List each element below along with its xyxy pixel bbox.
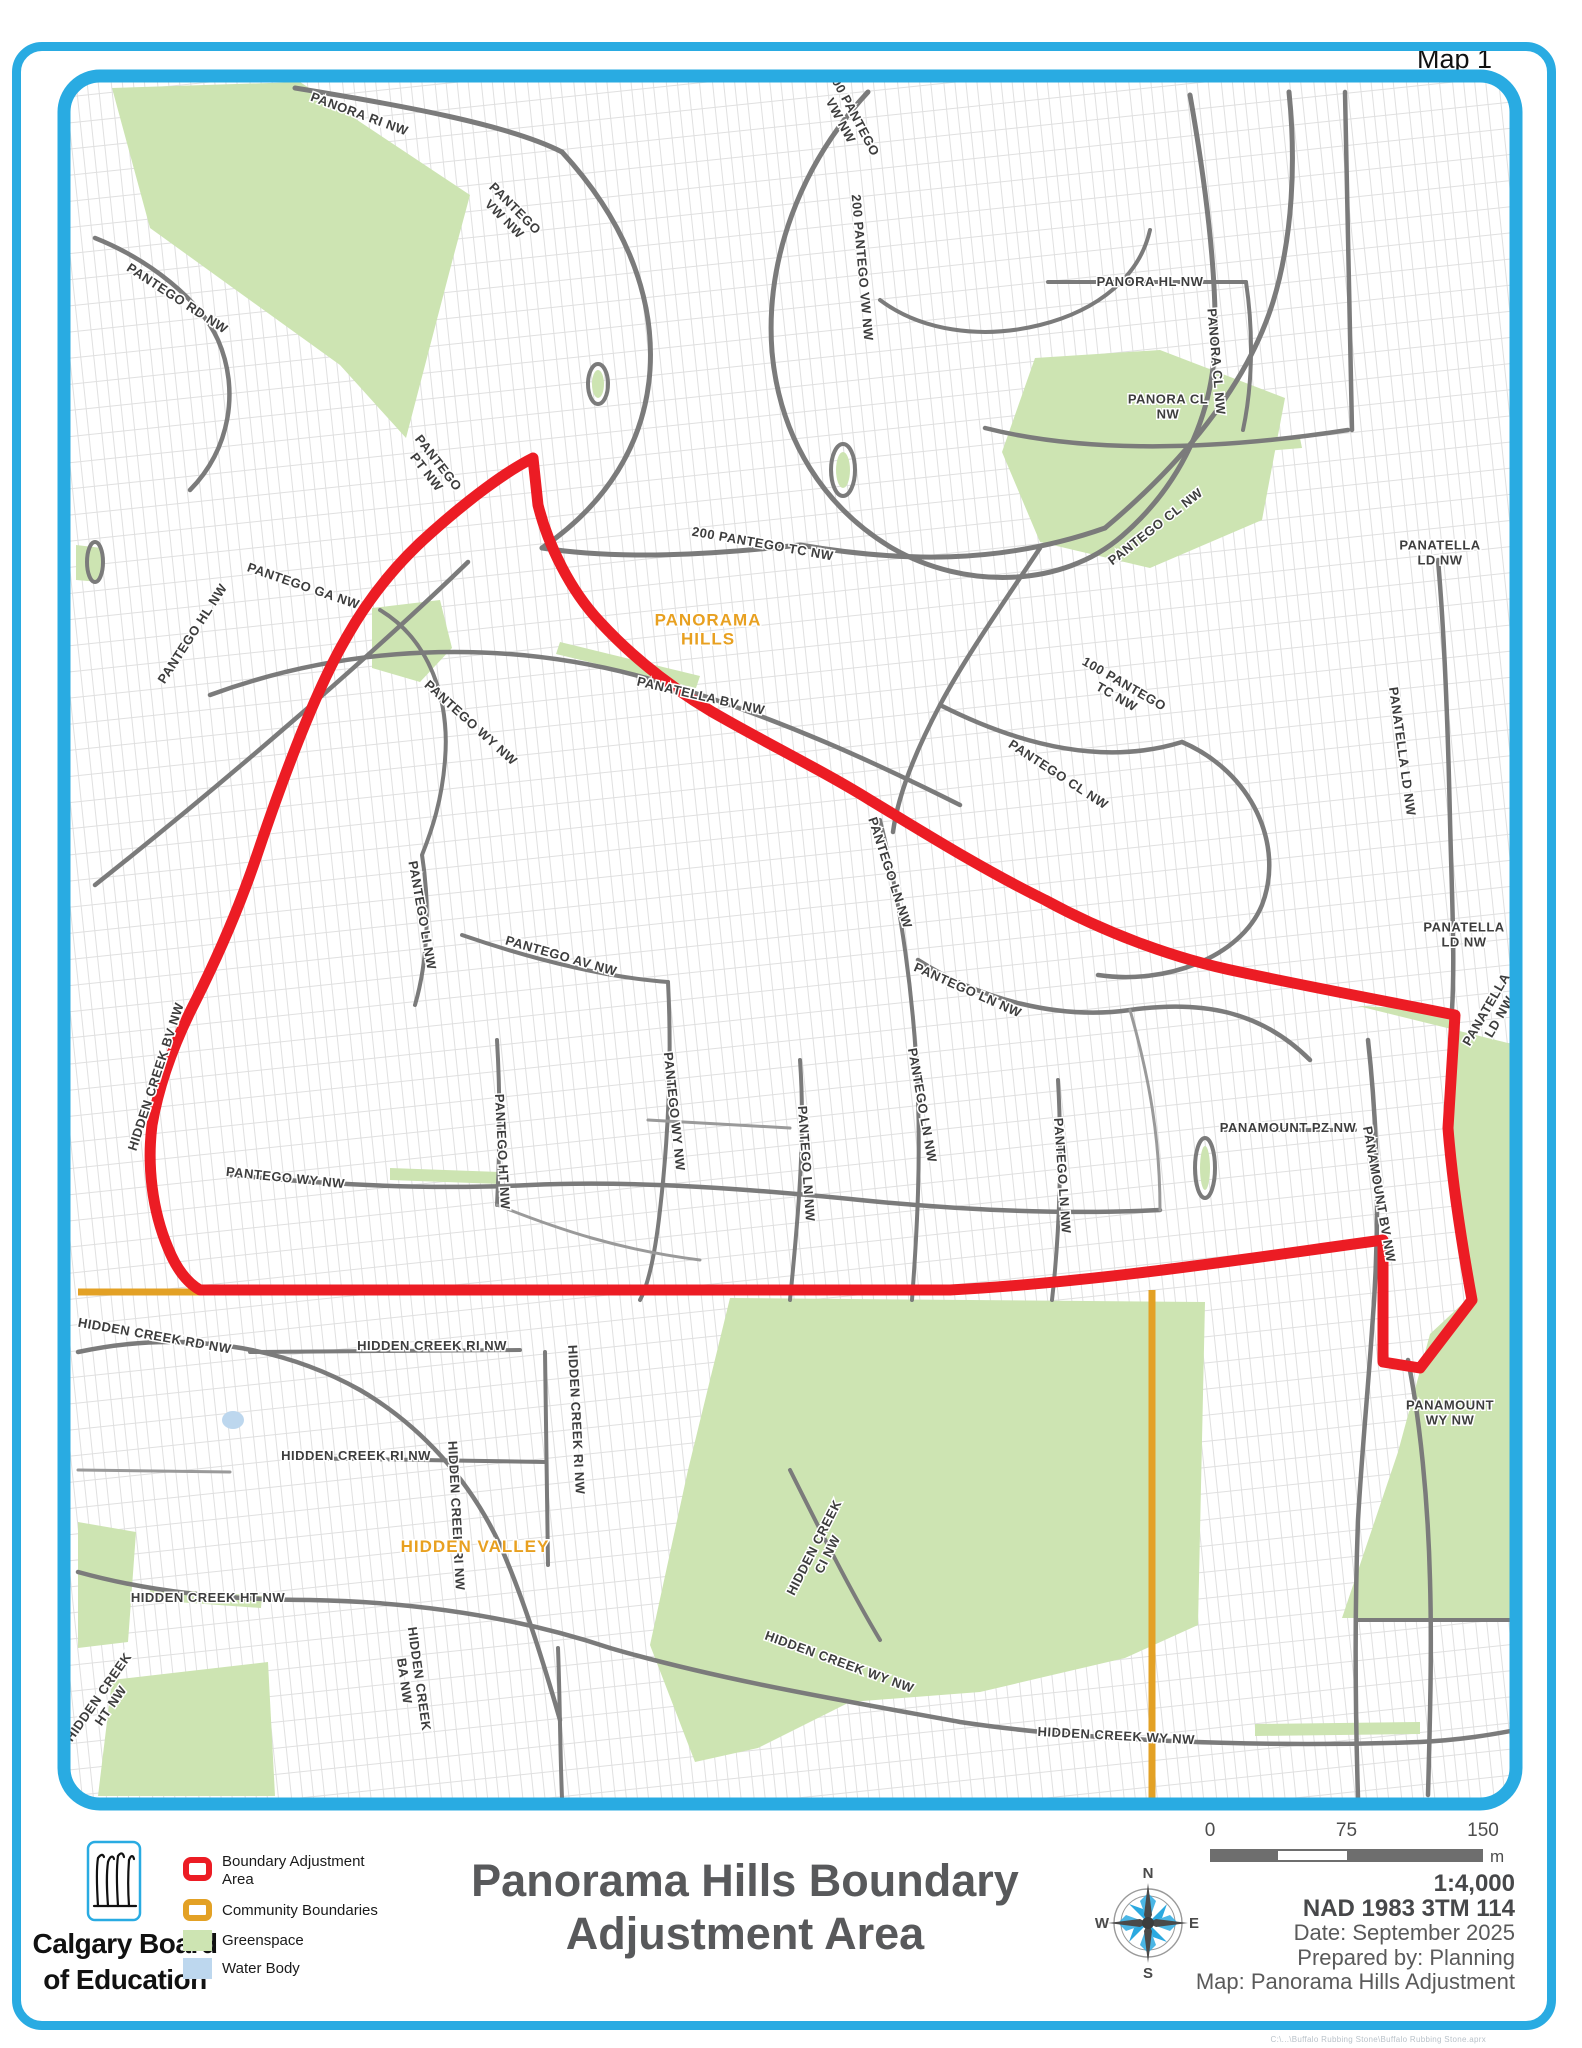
community-label: HIDDEN VALLEY — [401, 1537, 550, 1556]
greenspace-area — [98, 1662, 275, 1796]
map-name-text: Map: Panorama Hills Adjustment — [1196, 1970, 1515, 1995]
map-prepared-text: Prepared by: Planning — [1196, 1946, 1515, 1971]
map-date-text: Date: September 2025 — [1196, 1921, 1515, 1946]
street-label: PANORA HL NW — [1097, 274, 1204, 289]
map-scale-text: 1:4,000 — [1196, 1872, 1515, 1897]
legend-label-water-body: Water Body — [222, 1960, 300, 1978]
map-canvas[interactable]: PANORA RI NWPANTEGOVW NWPANTEGO RD NW200… — [0, 0, 1582, 2048]
street-label: HIDDEN CREEK HT NW — [131, 1590, 285, 1605]
compass-s: S — [1143, 1965, 1153, 1980]
legend-label-greenspace: Greenspace — [222, 1932, 304, 1950]
greenspace-sliver — [1200, 1146, 1210, 1190]
greenspace-area — [1255, 1722, 1420, 1736]
street-label: HIDDEN CREEK RI NW — [281, 1448, 431, 1463]
scale-tick-150: 150 — [1467, 1820, 1499, 1842]
street-label: PANAMOUNT PZ NW — [1220, 1120, 1357, 1135]
map-title-line1: Panorama Hills Boundary — [340, 1856, 1150, 1906]
water-body — [222, 1411, 244, 1429]
compass-n: N — [1143, 1865, 1154, 1882]
map-title: Panorama Hills Boundary Adjustment Area — [340, 1856, 1150, 1962]
scale-unit: m — [1490, 1847, 1504, 1867]
legend-swatch-community-boundaries — [183, 1899, 212, 1921]
map-datum-text: NAD 1983 3TM 114 — [1196, 1897, 1515, 1922]
scale-bar-graphic — [1210, 1849, 1483, 1862]
legend-swatch-boundary-adjustment — [183, 1857, 212, 1881]
scale-bar: 0 75 150 m — [1210, 1820, 1483, 1866]
street-label: HIDDEN CREEK RI NW — [357, 1338, 507, 1353]
greenspace-sliver — [592, 370, 604, 398]
water-layer — [222, 1411, 244, 1429]
map-title-line2: Adjustment Area — [340, 1906, 1150, 1962]
legend-swatch-greenspace — [183, 1930, 212, 1951]
map-info-block: 1:4,000 NAD 1983 3TM 114 Date: September… — [1196, 1872, 1515, 1995]
cbe-logo — [86, 1840, 142, 1922]
greenspace-sliver — [836, 452, 850, 488]
legend-swatch-water-body — [183, 1958, 212, 1979]
scale-tick-75: 75 — [1336, 1820, 1357, 1842]
scale-tick-0: 0 — [1205, 1820, 1216, 1842]
greenspace-sliver — [91, 548, 99, 576]
compass-rose: N S W E — [1093, 1864, 1203, 1980]
footer-file-path: C:\...\Buffalo Rubbing Stone\Buffalo Rub… — [1271, 2035, 1486, 2044]
road — [78, 1470, 230, 1472]
compass-w: W — [1095, 1915, 1110, 1932]
